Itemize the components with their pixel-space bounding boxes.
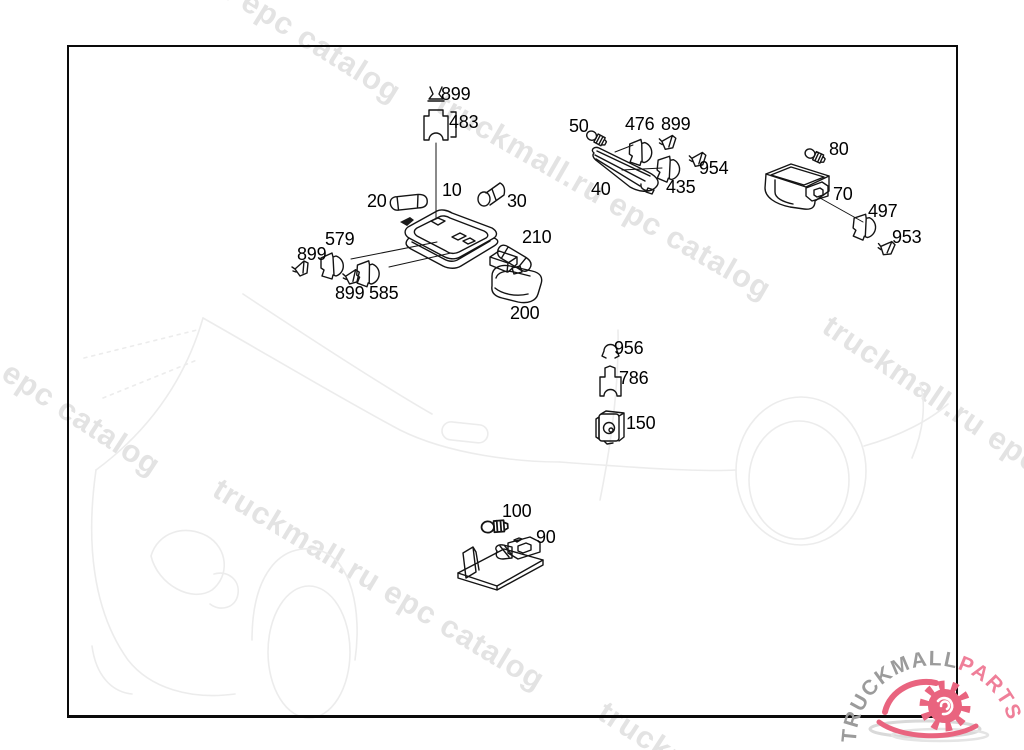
part-label-200: 200 [510,304,539,322]
part-label-954: 954 [699,159,728,177]
part-label-10: 10 [442,181,462,199]
part-label-30: 30 [507,192,527,210]
truckmall-parts-logo: TRUCKMALLPARTS [840,638,1024,750]
part-label-899-console-bulb: 899 [441,85,470,103]
part-label-435: 435 [666,178,695,196]
part-label-899-right: 899 [661,115,690,133]
parts-catalog-page: truckmall.ru epc catalogtruckmall.ru epc… [0,0,1024,750]
part-label-585: 585 [369,284,398,302]
part-label-40: 40 [591,180,611,198]
part-label-150: 150 [626,414,655,432]
part-label-50: 50 [569,117,589,135]
logo-gear [928,689,962,723]
part-label-899-mid: 899 [335,284,364,302]
part-label-953: 953 [892,228,921,246]
part-label-20: 20 [367,192,387,210]
part-label-483: 483 [449,113,478,131]
part-label-579: 579 [325,230,354,248]
part-label-497: 497 [868,202,897,220]
part-label-476: 476 [625,115,654,133]
part-label-80: 80 [829,140,849,158]
part-label-899-left: 899 [297,245,326,263]
logo-suffix-text: PARTS [955,652,1024,724]
part-label-786: 786 [619,369,648,387]
part-label-70: 70 [833,185,853,203]
part-label-210: 210 [522,228,551,246]
part-label-956: 956 [614,339,643,357]
part-label-90: 90 [536,528,556,546]
part-label-100: 100 [502,502,531,520]
